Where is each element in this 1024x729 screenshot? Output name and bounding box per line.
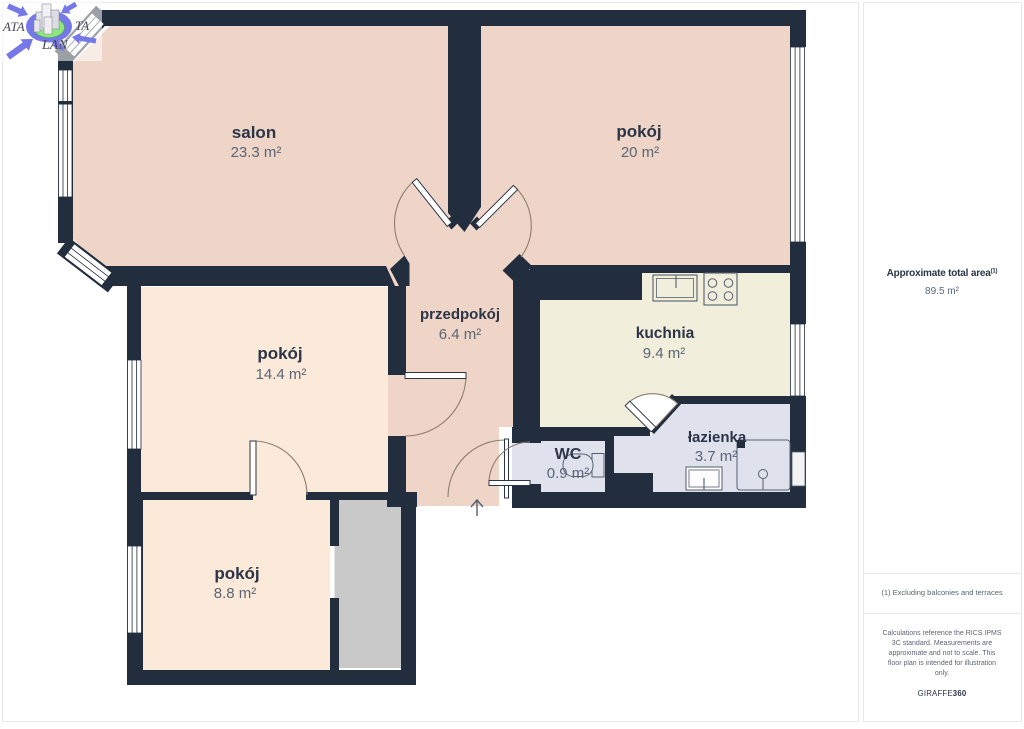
svg-text:approximate and not to scale.: approximate and not to scale. This <box>889 650 996 657</box>
svg-text:ATA: ATA <box>2 19 25 34</box>
svg-text:Approximate total area(1): Approximate total area(1) <box>887 268 998 279</box>
svg-text:9.4 m²: 9.4 m² <box>643 345 686 362</box>
svg-text:23.3 m²: 23.3 m² <box>231 144 282 161</box>
svg-text:pokój: pokój <box>257 344 302 363</box>
svg-text:łazienka: łazienka <box>688 429 747 446</box>
svg-text:only.: only. <box>935 670 949 677</box>
svg-text:0.9 m²: 0.9 m² <box>547 465 590 482</box>
svg-text:pokój: pokój <box>214 564 259 583</box>
svg-text:salon: salon <box>232 123 276 142</box>
svg-text:TA: TA <box>75 18 89 33</box>
svg-text:3C standard. Measurements are: 3C standard. Measurements are <box>892 640 992 647</box>
svg-text:14.4 m²: 14.4 m² <box>256 366 307 383</box>
svg-text:8.8 m²: 8.8 m² <box>214 585 257 602</box>
svg-text:20 m²: 20 m² <box>621 144 659 161</box>
svg-text:89.5 m²: 89.5 m² <box>925 286 960 297</box>
svg-text:WC: WC <box>555 446 582 463</box>
svg-text:6.4 m²: 6.4 m² <box>439 326 482 343</box>
svg-text:LAN: LAN <box>41 38 68 53</box>
svg-text:kuchnia: kuchnia <box>636 325 695 342</box>
svg-text:pokój: pokój <box>616 122 661 141</box>
svg-text:przedpokój: przedpokój <box>420 306 500 323</box>
svg-text:GIRAFFE360: GIRAFFE360 <box>918 689 967 698</box>
svg-text:Calculations reference the RIC: Calculations reference the RICS IPMS <box>882 630 1001 637</box>
svg-text:3.7 m²: 3.7 m² <box>695 448 738 465</box>
svg-text:floor plan is intended for ill: floor plan is intended for illustration <box>888 660 996 667</box>
svg-text:(1) Excluding balconies and te: (1) Excluding balconies and terraces <box>881 588 1003 597</box>
